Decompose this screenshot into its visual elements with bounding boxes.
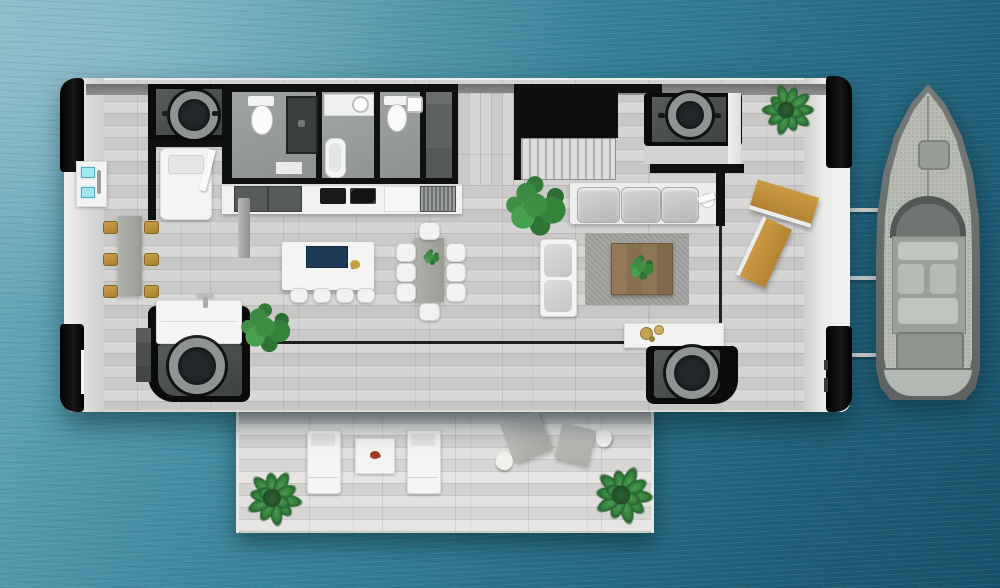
stair-landing (514, 88, 618, 138)
bar-stool (103, 253, 118, 266)
dining-table (414, 238, 444, 302)
boat-bow-hatch (918, 140, 950, 170)
plant-living-room (523, 193, 547, 217)
plant-coffee-table (636, 262, 646, 272)
island-sink-navy (306, 246, 348, 268)
palm-crown (612, 486, 631, 505)
control-panel (76, 161, 107, 207)
lounger-fold (308, 477, 338, 478)
palm-crown (778, 102, 795, 119)
boat-helm-bench (898, 242, 958, 260)
base-cabinet-dark (268, 186, 302, 212)
island-stool (313, 288, 331, 303)
dining-chair (446, 263, 466, 282)
motor-yacht (876, 84, 980, 400)
lounger-headrest (411, 434, 435, 446)
staircase (520, 138, 616, 180)
shower-drain (298, 120, 305, 127)
bath-mat (276, 162, 302, 174)
bar-stool (103, 221, 118, 234)
island-stool (357, 288, 375, 303)
vanity-drawer-line (161, 321, 237, 322)
bar-stool (103, 285, 118, 298)
bar-table (118, 216, 142, 296)
bar-stool (144, 285, 159, 298)
chaise-cushion (544, 280, 572, 312)
dining-chair (419, 222, 440, 240)
terrace-lounger (407, 430, 441, 494)
bar-stool (144, 253, 159, 266)
chaise-cushion (544, 244, 572, 277)
dining-chair (396, 283, 416, 302)
dining-chair (419, 303, 440, 321)
lounger-headrest (311, 434, 335, 446)
boat-engine-hatch (896, 332, 964, 370)
boat-seat (898, 264, 924, 294)
walkway-slot (824, 378, 828, 392)
boat-aft-bench (898, 298, 958, 324)
faucet-spout (203, 297, 208, 308)
boat-seat (930, 264, 956, 294)
dining-chair (446, 283, 466, 302)
pod-handle (658, 113, 665, 118)
terrace-side-table (355, 438, 395, 474)
bar-stool (144, 221, 159, 234)
sofa-seat (661, 187, 699, 223)
island-stool (336, 288, 354, 303)
sofa-seat (577, 187, 620, 223)
round-sink (352, 96, 369, 113)
bathtub-basin (329, 143, 341, 172)
food-plate (370, 451, 380, 459)
pontoon-slot (81, 350, 84, 394)
pod-round-hatch (170, 91, 218, 139)
white-wall-band (728, 93, 741, 164)
daybed-pillow (168, 155, 204, 174)
hose-reel (97, 170, 101, 194)
bathtub (325, 138, 346, 178)
lounger-fold (408, 477, 438, 478)
pontoon-top-right (826, 76, 852, 168)
chaise-daybed (540, 239, 577, 317)
plant-interior (255, 317, 275, 337)
dark-cabinet (136, 328, 151, 382)
sofa-seat (621, 187, 661, 223)
palm-crown (263, 489, 281, 507)
fruit-bowl (350, 260, 360, 269)
closet (426, 92, 452, 178)
console-shelf (624, 323, 724, 348)
pod-round-hatch (668, 93, 712, 137)
kitchen-sink (320, 188, 346, 204)
pod-handle (714, 113, 721, 118)
pontoon-bottom-right (826, 326, 852, 412)
stair-side-wall (514, 88, 521, 180)
pillar (238, 198, 250, 258)
cooktop (350, 188, 376, 204)
right-wall (716, 166, 725, 226)
gold-bowl (649, 336, 655, 342)
island-stool (290, 288, 308, 303)
terrace-lounger (307, 430, 341, 494)
shower (286, 96, 318, 154)
floorplan-scene (0, 0, 1000, 588)
vent-unit (420, 186, 456, 212)
display-screen (81, 187, 95, 198)
divider-wall-horizontal (650, 164, 744, 173)
white-cabinet (384, 186, 420, 212)
pod-round-hatch (169, 338, 225, 394)
pontoon-top-left (60, 78, 84, 172)
dining-chair (396, 243, 416, 262)
pod-round-hatch (666, 347, 718, 399)
small-sink (406, 96, 423, 113)
plant-dining-table (428, 254, 434, 260)
gold-bowl (654, 325, 664, 335)
dining-chair (446, 243, 466, 262)
toilet-bowl (251, 105, 273, 135)
walkway-slot (824, 360, 828, 370)
toilet-bowl (387, 104, 407, 132)
display-screen (81, 167, 95, 178)
dining-chair (396, 263, 416, 282)
pod-handle (162, 111, 169, 116)
pod-handle (212, 111, 219, 116)
